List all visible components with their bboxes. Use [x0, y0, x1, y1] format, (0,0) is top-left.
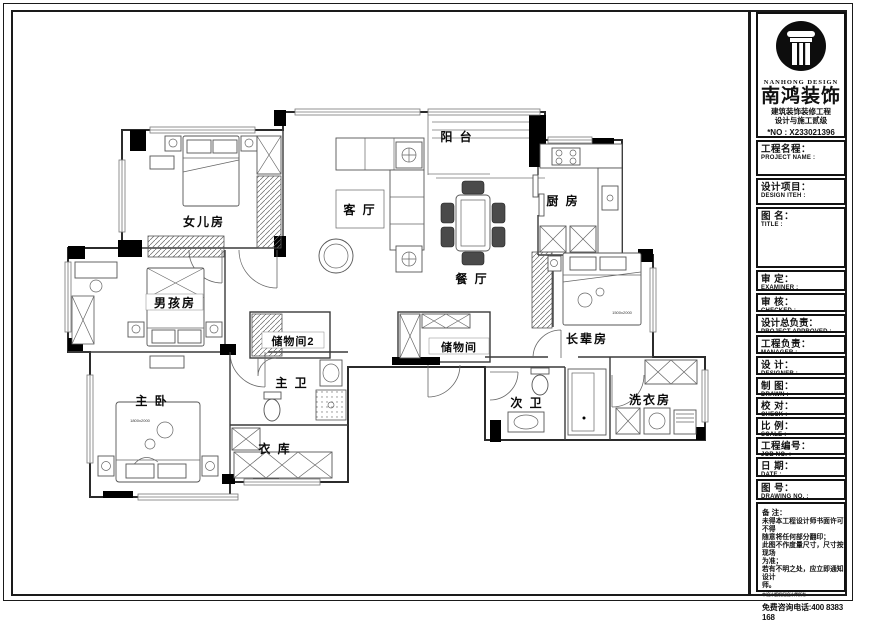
field-label-cn: 比 例：: [758, 419, 844, 432]
notes-heading: 备 注：: [758, 504, 844, 518]
field-label-cn: 设计项目：: [758, 180, 844, 193]
nanhong-logo-icon: [774, 20, 828, 72]
field-label-cn: 工程名程：: [758, 142, 844, 155]
brand-name-en: NANHONG DESIGN: [758, 79, 844, 86]
note-line: 未得本工程设计师书面许可不得: [758, 518, 844, 534]
field-manager: 工程负责： MANAGER :: [756, 335, 846, 354]
brand-name-cn: 南鸿装饰: [758, 86, 844, 107]
field-checked: 审 核： CHECKED :: [756, 293, 846, 312]
label-second-bath: 次 卫: [510, 395, 543, 410]
storage2-furniture: [252, 314, 324, 356]
drawing-sheet: { "title_block": { "logo": { "brand_en":…: [0, 0, 895, 633]
notes-box: 备 注： 未得本工程设计师书面许可不得 随意将任何部分翻印； 此图不作度量尺寸，…: [756, 502, 846, 592]
elders-room-furniture: 1500x2000: [548, 253, 641, 325]
brand-grade-line: 设计与施工贰级: [758, 116, 844, 125]
label-dining-room: 餐 厅: [455, 271, 488, 286]
field-label-en: TITLE :: [758, 222, 844, 229]
label-daughter-room: 女儿房: [183, 214, 225, 229]
field-label-cn: 日 期：: [758, 459, 844, 472]
field-label-cn: 工程负责：: [758, 337, 844, 350]
field-label-en: DATE :: [758, 472, 844, 479]
field-label-en: DESIGN ITEH :: [758, 193, 844, 200]
note-line: 为准；: [758, 558, 844, 566]
field-label-en: PROJECT NAME :: [758, 155, 844, 162]
field-label-en: DRAWING NO. :: [758, 494, 844, 501]
field-date: 日 期： DATE :: [756, 457, 846, 477]
daughter-room-furniture: [148, 136, 281, 257]
field-title: 图 名： TITLE :: [756, 207, 846, 268]
field-job-no: 工程编号： JOB NO. :: [756, 437, 846, 455]
field-designer: 设 计： DESIGNER :: [756, 356, 846, 375]
dining-furniture: [441, 181, 505, 265]
field-label-cn: 制 图：: [758, 379, 844, 392]
master-bedroom-furniture: 1800x2000: [98, 356, 218, 482]
field-label-cn: 审 核：: [758, 295, 844, 308]
field-label-cn: 图 号：: [758, 481, 844, 494]
license-number: *NO : X233021396: [758, 128, 844, 137]
notes-fine-print: 本设计版权归设计师所有: [758, 590, 844, 598]
floor-plan: 1800x2000: [0, 0, 750, 600]
field-design-item: 设计项目： DESIGN ITEH :: [756, 178, 846, 205]
note-line: 随意将任何部分翻印；: [758, 534, 844, 542]
label-living-room: 客 厅: [342, 202, 376, 217]
brand-scope-line: 建筑装饰装修工程: [758, 107, 844, 116]
field-examiner: 审 定： EXAMINER :: [756, 270, 846, 291]
label-balcony: 阳 台: [440, 129, 473, 144]
field-scale: 比 例： SCALE :: [756, 417, 846, 435]
field-drawn: 制 图： DRAWN :: [756, 377, 846, 395]
field-label-cn: 设 计：: [758, 358, 844, 371]
label-master-bedroom: 主 卧: [135, 393, 168, 408]
field-drawing-no: 图 号： DRAWING NO. :: [756, 479, 846, 500]
field-label-cn: 审 定：: [758, 272, 844, 285]
field-check: 校 对： CHECK :: [756, 397, 846, 415]
note-line: 师。: [758, 582, 844, 590]
label-cloak-room: 衣 库: [258, 441, 291, 456]
label-elders-room: 长辈房: [566, 331, 608, 346]
label-master-bath: 主 卫: [275, 375, 308, 390]
label-boys-room: 男孩房: [154, 295, 196, 310]
field-label-cn: 校 对：: [758, 399, 844, 412]
field-label-cn: 图 名：: [758, 209, 844, 222]
label-laundry-room: 洗衣房: [629, 392, 671, 407]
elders-bed-dimension: 1500x2000: [612, 310, 633, 315]
master-bath-furniture: [264, 360, 346, 421]
field-project-name: 工程名程： PROJECT NAME :: [756, 140, 846, 176]
master-bed-dimension: 1800x2000: [130, 418, 151, 423]
hotline-number: 免费咨询电话:400 8383 168: [758, 598, 844, 622]
label-storage-2: 储物间2: [271, 334, 314, 348]
field-project-approved: 设计总负责： PROJECT APPROVED :: [756, 314, 846, 333]
note-line: 此图不作度量尺寸，尺寸按现场: [758, 542, 844, 558]
logo-box: NANHONG DESIGN 南鸿装饰 建筑装饰装修工程 设计与施工贰级 *NO…: [756, 12, 846, 138]
field-label-en: EXAMINER :: [758, 285, 844, 292]
field-label-cn: 工程编号：: [758, 439, 844, 452]
field-label-cn: 设计总负责：: [758, 316, 844, 329]
label-kitchen: 厨 房: [546, 193, 579, 208]
living-room-furniture: [319, 138, 552, 328]
note-line: 若有不明之处，应立即通知设计: [758, 566, 844, 582]
label-storage: 储物间: [441, 340, 477, 354]
